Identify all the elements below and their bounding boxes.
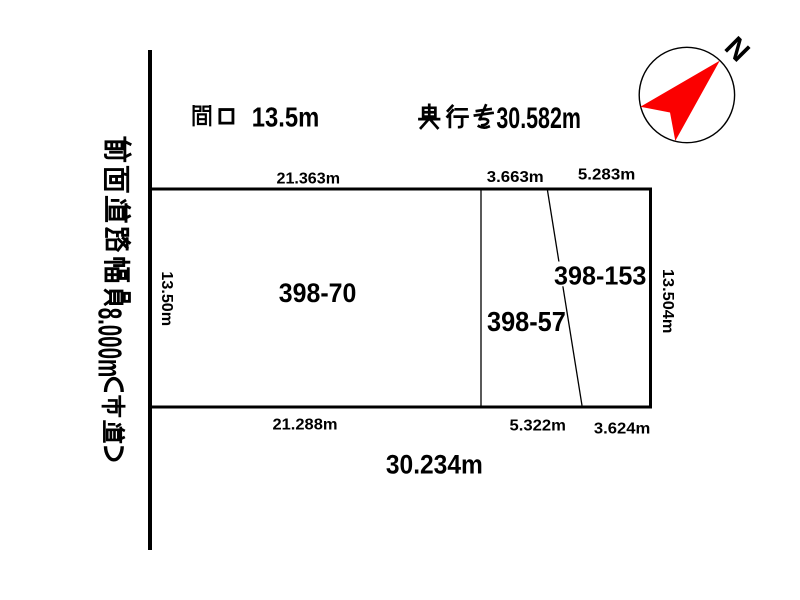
svg-text:21.288m: 21.288m xyxy=(273,417,338,434)
svg-text:30.234m: 30.234m xyxy=(386,450,483,480)
svg-text:398-153: 398-153 xyxy=(554,260,646,290)
svg-text:8.000m: 8.000m xyxy=(91,308,128,378)
svg-text:398-70: 398-70 xyxy=(279,278,357,308)
svg-text:3.663m: 3.663m xyxy=(487,169,544,186)
svg-text:13.504m: 13.504m xyxy=(659,269,676,333)
svg-text:30.582m: 30.582m xyxy=(496,102,581,135)
svg-text:13.50m: 13.50m xyxy=(158,271,175,326)
svg-text:13.5m: 13.5m xyxy=(252,101,319,132)
svg-text:3.624m: 3.624m xyxy=(594,421,650,438)
svg-text:5.322m: 5.322m xyxy=(510,418,566,435)
svg-text:398-57: 398-57 xyxy=(487,306,566,337)
svg-text:5.283m: 5.283m xyxy=(578,167,635,184)
svg-text:21.363m: 21.363m xyxy=(277,171,341,188)
svg-text:N: N xyxy=(718,31,755,68)
